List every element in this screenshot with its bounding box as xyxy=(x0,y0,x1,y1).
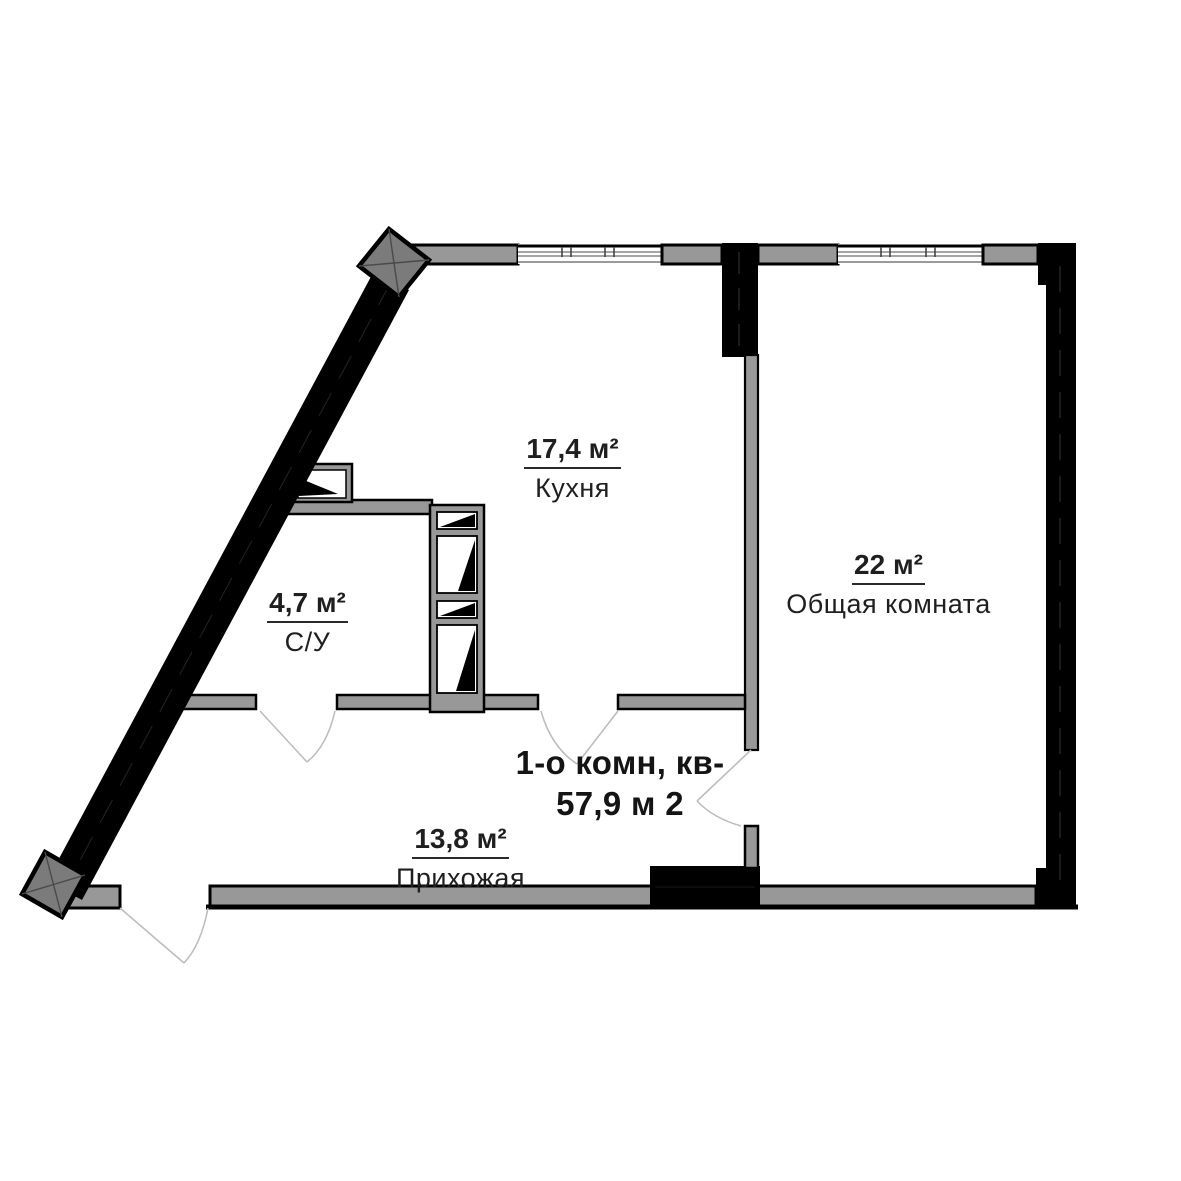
apartment-title-line1: 1-о комн, кв- xyxy=(485,742,755,783)
wall-segment xyxy=(758,245,838,264)
wall-stub xyxy=(745,826,758,868)
bathroom-name: С/У xyxy=(225,626,390,659)
wall-segment xyxy=(983,245,1038,264)
living-room-label: 22 м² Общая комната xyxy=(756,548,1021,621)
living-room-area: 22 м² xyxy=(852,548,925,585)
bathroom-door-swing xyxy=(260,711,335,762)
hallway-wall-right xyxy=(618,695,745,709)
kitchen-label: 17,4 м² Кухня xyxy=(470,432,675,505)
entry-door-swing xyxy=(120,908,208,963)
wall-segment xyxy=(662,245,722,264)
bathroom-label: 4,7 м² С/У xyxy=(225,586,390,659)
kitchen-living-divider-header xyxy=(722,243,758,357)
outer-bottom-wall xyxy=(64,826,1078,908)
hallway-area: 13,8 м² xyxy=(412,822,508,859)
bathroom-area: 4,7 м² xyxy=(267,586,348,623)
ventilation-shaft xyxy=(430,505,484,712)
outer-right-wall xyxy=(1036,243,1076,906)
living-room-name: Общая комната xyxy=(756,588,1021,621)
apartment-title: 1-о комн, кв- 57,9 м 2 xyxy=(485,742,755,825)
apartment-title-line2: 57,9 м 2 xyxy=(485,783,755,824)
window-1 xyxy=(518,244,662,264)
window-2 xyxy=(838,244,983,264)
hallway-label: 13,8 м² Прихожая xyxy=(358,822,563,895)
outer-top-wall xyxy=(410,243,1038,357)
kitchen-name: Кухня xyxy=(470,472,675,505)
hallway-name: Прихожая xyxy=(358,862,563,895)
floor-plan-page: 17,4 м² Кухня 22 м² Общая комната 4,7 м²… xyxy=(0,0,1181,1181)
kitchen-area: 17,4 м² xyxy=(524,432,620,469)
